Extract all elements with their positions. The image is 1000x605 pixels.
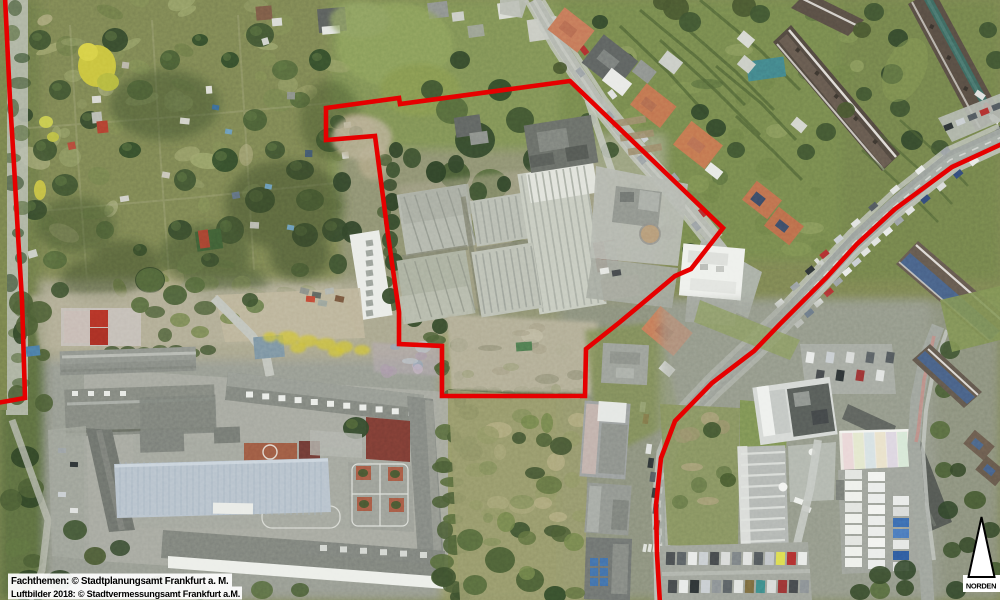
svg-text:Luftbilder 2018: © Stadtvermes: Luftbilder 2018: © Stadtvermessungsamt F…	[11, 589, 240, 599]
svg-text:NORDEN: NORDEN	[966, 582, 996, 591]
svg-text:Fachthemen: © Stadtplanungsamt: Fachthemen: © Stadtplanungsamt Frankfurt…	[11, 576, 229, 587]
